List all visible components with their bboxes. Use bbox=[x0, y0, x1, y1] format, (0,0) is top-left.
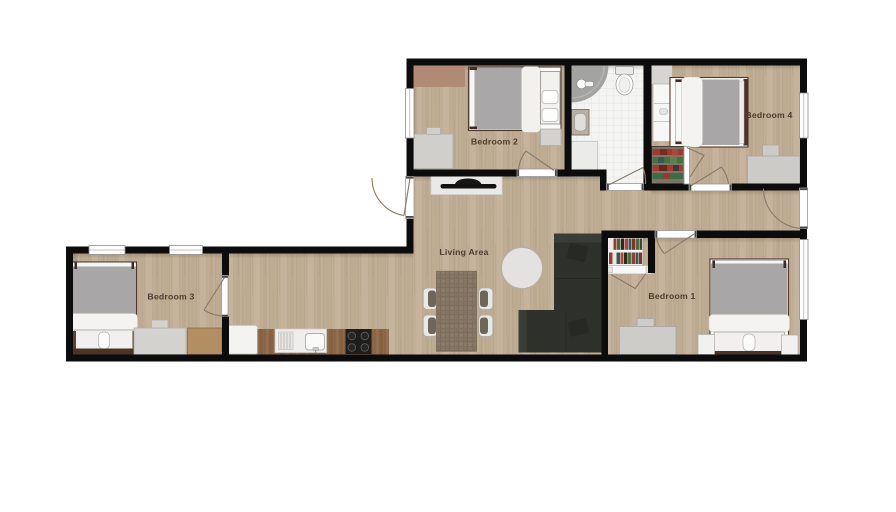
svg-text:Bedroom 1: Bedroom 1 bbox=[648, 291, 695, 301]
svg-text:Living Area: Living Area bbox=[439, 247, 488, 257]
svg-text:Bedroom 3: Bedroom 3 bbox=[147, 292, 194, 302]
svg-text:Bedroom 2: Bedroom 2 bbox=[471, 137, 518, 147]
svg-text:Bedroom 4: Bedroom 4 bbox=[745, 110, 792, 120]
